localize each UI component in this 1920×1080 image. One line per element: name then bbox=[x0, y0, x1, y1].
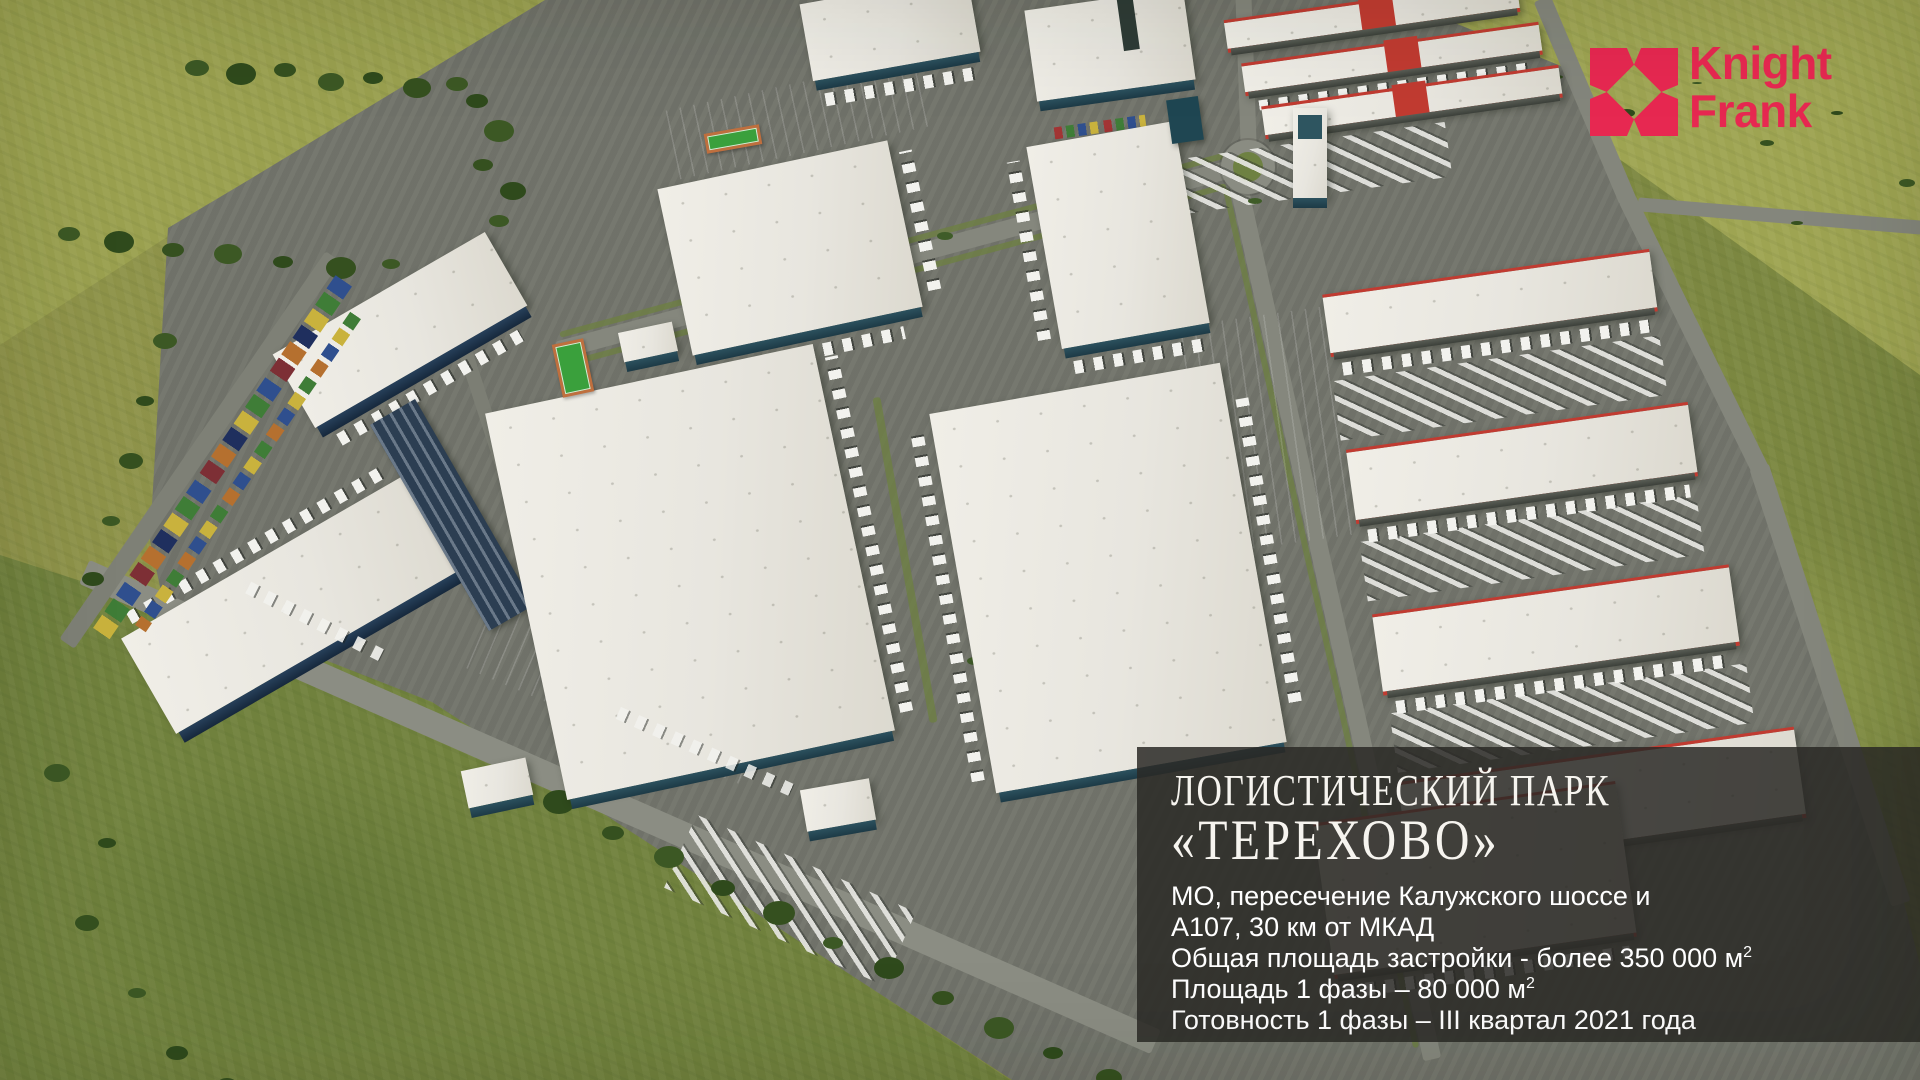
detail-superscript: 2 bbox=[1743, 944, 1752, 961]
detail-text: МО, пересечение Калужского шоссе и bbox=[1171, 881, 1650, 911]
office-tower bbox=[1293, 108, 1327, 198]
red-center-block bbox=[1358, 0, 1397, 34]
panel-title-line-1: ЛОГИСТИЧЕСКИЙ ПАРК bbox=[1171, 767, 1749, 814]
tree-cluster-bottom-left bbox=[60, 680, 90, 702]
detail-text: Общая площадь застройки - более 350 000 … bbox=[1171, 943, 1743, 973]
logo-word-frank: Frank bbox=[1689, 87, 1832, 135]
detail-text: Площадь 1 фазы – 80 000 м bbox=[1171, 974, 1526, 1004]
detail-text: Готовность 1 фазы – III квартал 2021 год… bbox=[1171, 1005, 1696, 1035]
tree-row-top-2 bbox=[8, 212, 38, 234]
red-center-block bbox=[1391, 80, 1430, 120]
red-center-block bbox=[1383, 36, 1422, 76]
logo-wordmark: Knight Frank bbox=[1689, 39, 1832, 135]
slide: Knight Frank ЛОГИСТИЧЕСКИЙ ПАРК «ТЕРЕХОВ… bbox=[0, 0, 1920, 1080]
tower-roof-equipment bbox=[1298, 115, 1322, 138]
panel-details: МО, пересечение Калужского шоссе и А107,… bbox=[1171, 881, 1894, 1036]
detail-superscript: 2 bbox=[1526, 975, 1535, 992]
tree-row-bottom-road bbox=[432, 736, 462, 758]
roof-notch bbox=[1116, 0, 1140, 51]
info-panel: ЛОГИСТИЧЕСКИЙ ПАРК «ТЕРЕХОВО» МО, пересе… bbox=[1137, 747, 1920, 1042]
tree-row-left bbox=[168, 268, 198, 290]
detail-line-total-area: Общая площадь застройки - более 350 000 … bbox=[1171, 943, 1894, 974]
detail-line-phase1-readiness: Готовность 1 фазы – III квартал 2021 год… bbox=[1171, 1005, 1894, 1036]
utility-block bbox=[1166, 96, 1204, 144]
knight-frank-logo: Knight Frank bbox=[1590, 48, 1832, 136]
warehouse-u-shaped bbox=[1024, 0, 1195, 102]
detail-text: А107, 30 км от МКАД bbox=[1171, 912, 1434, 942]
detail-line-location-1: МО, пересечение Калужского шоссе и bbox=[1171, 881, 1894, 912]
logo-word-knight: Knight bbox=[1689, 39, 1832, 87]
tree-scatter-park bbox=[600, 310, 630, 332]
detail-line-location-2: А107, 30 км от МКАД bbox=[1171, 912, 1894, 943]
detail-line-phase1-area: Площадь 1 фазы – 80 000 м2 bbox=[1171, 974, 1894, 1005]
tree-cluster-top bbox=[438, 58, 468, 80]
knight-frank-pinwheel-mark-icon bbox=[1590, 48, 1678, 136]
tree-row-top bbox=[140, 48, 170, 70]
court-surface bbox=[555, 342, 590, 394]
panel-title-line-2: «ТЕРЕХОВО» bbox=[1171, 814, 1778, 868]
